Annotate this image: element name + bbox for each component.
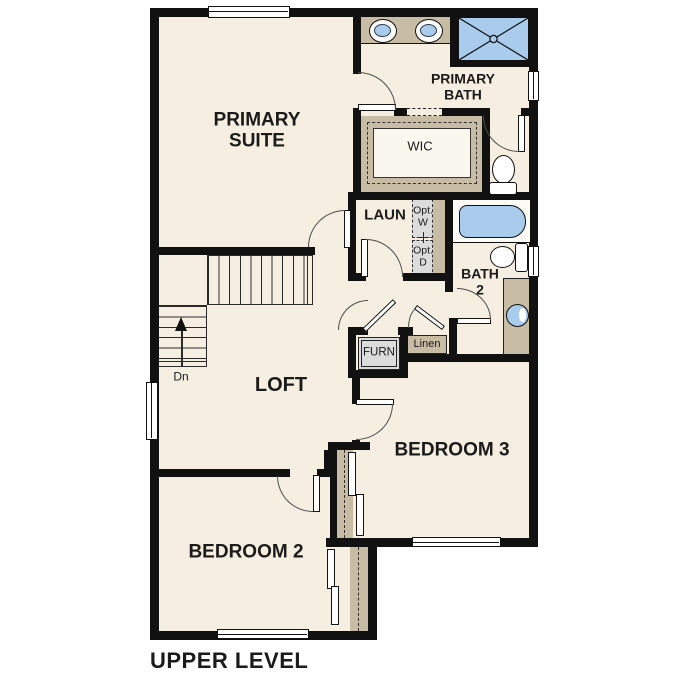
room-label-wic: WIC xyxy=(407,140,432,155)
label-opt-dryer: Opt. D xyxy=(409,245,437,269)
window xyxy=(528,246,539,277)
sink-icon xyxy=(506,304,529,327)
room-label-loft: LOFT xyxy=(255,374,307,396)
wall xyxy=(449,318,457,362)
door-leaf xyxy=(344,210,351,248)
wall xyxy=(353,108,361,199)
toilet-icon xyxy=(492,155,515,184)
closet-door-panel xyxy=(356,494,364,536)
closet-door-panel xyxy=(331,586,339,625)
wall xyxy=(403,273,453,281)
room-label-bedroom2: BEDROOM 2 xyxy=(171,541,321,562)
label-linen: Linen xyxy=(414,338,441,350)
shower-icon xyxy=(457,16,530,62)
wall xyxy=(450,12,457,67)
stairs-stringer-line xyxy=(307,256,308,304)
window xyxy=(146,382,158,440)
room-label-primary-suite: PRIMARY SUITE xyxy=(197,110,317,153)
wall xyxy=(150,8,159,640)
bathtub-icon xyxy=(459,205,526,238)
wall xyxy=(150,469,290,477)
door-leaf xyxy=(518,115,525,152)
wall xyxy=(368,547,377,640)
wall xyxy=(324,450,332,477)
window xyxy=(217,629,309,639)
closet-door-panel xyxy=(327,549,335,589)
wall xyxy=(150,247,315,255)
closet-door-panel xyxy=(348,452,356,496)
door-leaf xyxy=(313,475,320,512)
window xyxy=(208,6,290,18)
floor-plan: PRIMARY SUITE PRIMARY BATH WIC LAUN Opt.… xyxy=(0,0,687,687)
label-opt-washer: Opt. W xyxy=(409,205,437,229)
room-label-bath2: BATH 2 xyxy=(457,266,503,297)
closet-rod-line xyxy=(344,450,345,538)
stairs-up-arrow-icon xyxy=(175,317,187,331)
stairs-direction-line xyxy=(181,331,183,366)
label-stairs-down: Dn xyxy=(173,370,188,383)
room-label-laundry: LAUN xyxy=(364,208,406,225)
stairs-upper-flight xyxy=(207,255,313,305)
page-title: UPPER LEVEL xyxy=(150,648,308,674)
window xyxy=(528,71,539,101)
label-furnace: FURN xyxy=(363,347,395,360)
toilet-tank xyxy=(515,243,528,272)
closet-rod-line xyxy=(358,547,359,631)
toilet-tank xyxy=(489,182,517,195)
room-label-bedroom3: BEDROOM 3 xyxy=(377,439,527,460)
wall xyxy=(328,442,370,450)
divider-cross xyxy=(423,232,424,243)
room-label-primary-bath: PRIMARY BATH xyxy=(417,71,509,102)
wall xyxy=(400,354,538,362)
wall xyxy=(353,12,361,74)
sink-icon xyxy=(369,19,397,43)
bedroom2-closet-shelf xyxy=(350,547,369,631)
sink-icon xyxy=(415,19,443,43)
cased-opening-dashed xyxy=(407,108,442,116)
shower-glass-lines xyxy=(459,18,528,60)
window xyxy=(412,537,501,547)
